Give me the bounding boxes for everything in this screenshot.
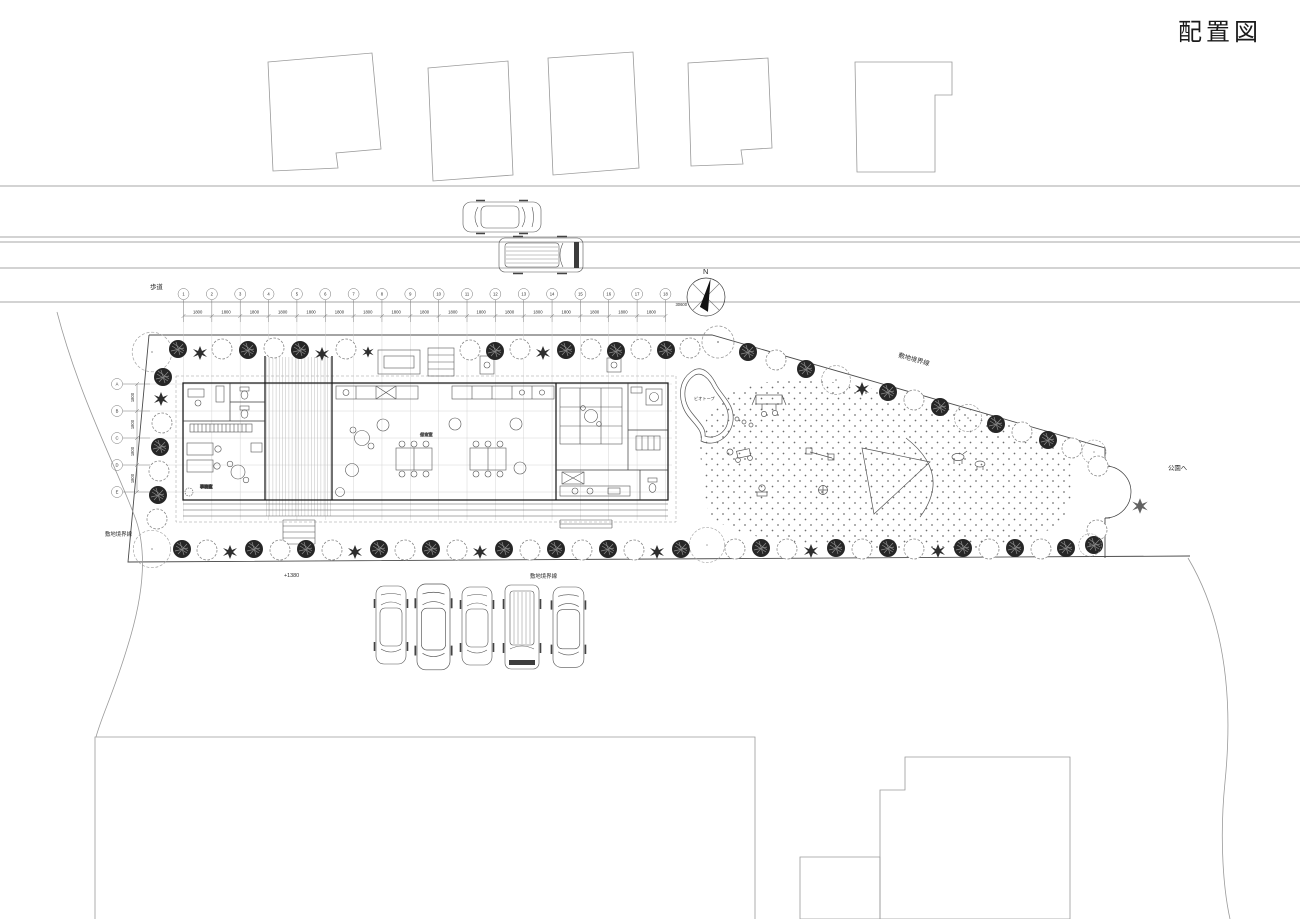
neighbour-building-1 <box>268 53 381 171</box>
column-grid-x: 1180021800318004180051800618007180081800… <box>178 289 688 323</box>
tree-icon <box>322 540 342 560</box>
shrub-icon <box>193 346 207 360</box>
parking-row <box>375 584 586 670</box>
pond-label: ビオトープ <box>694 395 715 402</box>
grid-x-label: 14 <box>550 292 555 297</box>
grid-y-label: A <box>116 382 119 387</box>
tree-icon <box>657 341 675 359</box>
grid-x-label: 7 <box>352 292 355 297</box>
grid-y-bay-dim: 1800 <box>130 392 135 402</box>
grid-x-bay-dim: 1800 <box>477 310 487 315</box>
grid-x-bay-dim: 1800 <box>448 310 458 315</box>
grid-x-bay-dim: 1800 <box>647 310 657 315</box>
tree-icon <box>624 540 644 560</box>
grid-x-label: 5 <box>296 292 299 297</box>
tree-icon <box>132 332 172 372</box>
tree-icon <box>1057 539 1075 557</box>
tree-icon <box>766 350 786 370</box>
tree-icon <box>547 540 565 558</box>
road: 歩道 <box>0 186 1300 302</box>
grid-y-label: C <box>115 436 118 441</box>
tree-icon <box>979 539 999 559</box>
tree-icon <box>149 461 169 481</box>
site-plan-drawing: 歩道 ビオトープ 敷地境界線 敷地境界線 敷地境界線 +1380 公園へ <box>0 0 1300 919</box>
boundary-ne-label: 敷地境界線 <box>897 350 931 368</box>
grid-x-bay-dim: 1800 <box>363 310 373 315</box>
grid-x-label: 10 <box>436 292 441 297</box>
grid-x-label: 9 <box>409 292 412 297</box>
neighbour-building-5 <box>855 62 952 172</box>
tree-icon <box>510 339 530 359</box>
tree-icon <box>212 339 232 359</box>
tree-icon <box>395 540 415 560</box>
level-mark: +1380 <box>284 573 299 579</box>
parked-car-5 <box>551 587 585 667</box>
tree-icon <box>239 341 257 359</box>
north-label: N <box>703 267 708 276</box>
shrub-icon <box>348 545 362 559</box>
tree-icon <box>879 383 897 401</box>
neighbour-building-3 <box>548 52 639 175</box>
grid-x-bay-dim: 1800 <box>618 310 628 315</box>
tree-icon <box>599 540 617 558</box>
tree-icon <box>725 539 745 559</box>
tree-icon <box>739 343 757 361</box>
tree-icon <box>297 540 315 558</box>
tree-icon <box>572 540 592 560</box>
playground-ground <box>700 380 1074 550</box>
grid-x-bay-dim: 1800 <box>193 310 203 315</box>
tree-icon <box>152 413 172 433</box>
tree-icon <box>680 338 700 358</box>
grid-y-label: E <box>116 490 119 495</box>
grid-x-label: 3 <box>239 292 242 297</box>
south-parcel <box>95 737 755 919</box>
tree-icon <box>495 540 513 558</box>
tree-icon <box>1006 539 1024 557</box>
tree-icon <box>1088 456 1108 476</box>
tree-icon <box>1012 422 1032 442</box>
se-building-2 <box>800 857 880 919</box>
grid-x-label: 16 <box>606 292 611 297</box>
tree-icon <box>689 527 724 562</box>
tree-icon <box>797 360 815 378</box>
tree-icon <box>904 539 924 559</box>
tree-icon <box>581 339 601 359</box>
grid-x-label: 12 <box>493 292 498 297</box>
tree-icon <box>557 341 575 359</box>
grid-x-bay-dim: 1800 <box>420 310 430 315</box>
grid-x-label: 15 <box>578 292 583 297</box>
tree-icon <box>486 342 504 360</box>
grid-x-label: 8 <box>381 292 384 297</box>
west-road-curve <box>57 312 142 737</box>
east-path-curve <box>1188 558 1230 919</box>
tree-icon <box>904 390 924 410</box>
tree-icon <box>1031 539 1051 559</box>
tree-icon <box>631 339 651 359</box>
office-label: 事務室 <box>200 483 213 490</box>
shrub-icon <box>473 545 487 559</box>
grid-y-bay-dim: 1800 <box>130 419 135 429</box>
tree-icon <box>149 486 167 504</box>
tree-icon <box>370 540 388 558</box>
tree-icon <box>422 540 440 558</box>
shrub-icon <box>650 545 664 559</box>
sidewalk-label: 歩道 <box>150 282 163 291</box>
shrub-icon <box>362 346 373 357</box>
grid-x-label: 2 <box>211 292 214 297</box>
tree-icon <box>607 342 625 360</box>
tree-icon <box>460 340 480 360</box>
grid-x-bay-dim: 1800 <box>335 310 345 315</box>
boundary-sw-label: 敷地境界線 <box>105 530 133 538</box>
tree-icon <box>197 540 217 560</box>
parked-car-2 <box>415 584 451 670</box>
grid-y-label: B <box>116 409 119 414</box>
terrace-steps-west <box>283 520 315 544</box>
tree-icon <box>336 339 356 359</box>
grid-x-bay-dim: 1800 <box>278 310 288 315</box>
south-terrace <box>183 504 668 544</box>
parked-van <box>504 585 541 669</box>
shrub-icon <box>315 347 329 361</box>
neighbour-building-4 <box>688 58 772 166</box>
tree-icon <box>151 438 169 456</box>
tree-icon <box>270 540 290 560</box>
road-car-sedan <box>463 201 541 234</box>
path-shrub-sketch <box>1132 498 1147 513</box>
tree-icon <box>752 539 770 557</box>
tree-icon <box>147 509 167 529</box>
tree-icon <box>777 539 797 559</box>
tree-icon <box>931 398 949 416</box>
column-grid-y: A1800B1800C1800D1800E <box>112 379 151 498</box>
grid-x-label: 17 <box>635 292 640 297</box>
grid-x-bay-dim: 1800 <box>590 310 600 315</box>
entrance-deck <box>267 357 331 516</box>
tree-icon <box>852 539 872 559</box>
neighbour-building-2 <box>428 61 513 181</box>
grid-x-bay-dim: 1800 <box>306 310 316 315</box>
grid-y-label: D <box>115 463 118 468</box>
grid-x-label: 1 <box>182 292 185 297</box>
tree-icon <box>987 415 1005 433</box>
tree-icon <box>173 540 191 558</box>
grid-x-bay-dim: 1800 <box>505 310 515 315</box>
to-park-label: 公園へ <box>1168 464 1188 472</box>
grid-y-bay-dim: 1800 <box>130 446 135 456</box>
grid-x-label: 11 <box>465 292 470 297</box>
tree-icon <box>954 539 972 557</box>
shrub-icon <box>536 346 550 360</box>
tree-icon <box>291 341 309 359</box>
grid-x-bay-dim: 1800 <box>533 310 543 315</box>
shrub-icon <box>223 545 237 559</box>
shrub-icon <box>154 392 168 406</box>
drawing-title: 配置図 <box>1178 18 1262 46</box>
tree-icon <box>672 540 690 558</box>
playroom-label: 保育室 <box>420 431 433 438</box>
tree-icon <box>154 368 172 386</box>
parked-car-1 <box>375 586 408 664</box>
grid-x-label: 18 <box>663 292 668 297</box>
grid-y-bay-dim: 1800 <box>130 473 135 483</box>
tree-icon <box>1085 536 1103 554</box>
double-swing-gate <box>1105 466 1131 518</box>
tree-icon <box>702 326 734 358</box>
grid-x-label: 13 <box>521 292 526 297</box>
se-building-1 <box>880 757 1070 919</box>
shrub-icon <box>804 544 818 558</box>
tree-icon <box>169 340 187 358</box>
tree-icon <box>1039 431 1057 449</box>
tree-icon <box>264 338 284 358</box>
grid-x-label: 6 <box>324 292 327 297</box>
terrace-steps-east <box>560 520 612 528</box>
boundary-s-label: 敷地境界線 <box>530 572 558 580</box>
tree-icon <box>447 540 467 560</box>
grid-x-bay-dim: 1800 <box>250 310 260 315</box>
grid-x-total-dim: 30600 <box>675 302 687 307</box>
grid-x-label: 4 <box>267 292 270 297</box>
tree-icon <box>1062 438 1082 458</box>
tree-icon <box>827 539 845 557</box>
neighbour-buildings <box>268 52 952 181</box>
grid-x-bay-dim: 1800 <box>221 310 231 315</box>
site-plan-page: 歩道 ビオトープ 敷地境界線 敷地境界線 敷地境界線 +1380 公園へ <box>0 0 1300 919</box>
grid-x-bay-dim: 1800 <box>391 310 401 315</box>
grid-x-bay-dim: 1800 <box>562 310 572 315</box>
parked-car-3 <box>461 587 494 665</box>
tree-icon <box>520 540 540 560</box>
tree-icon <box>879 539 897 557</box>
north-arrow: N <box>687 267 725 316</box>
tree-icon <box>245 540 263 558</box>
